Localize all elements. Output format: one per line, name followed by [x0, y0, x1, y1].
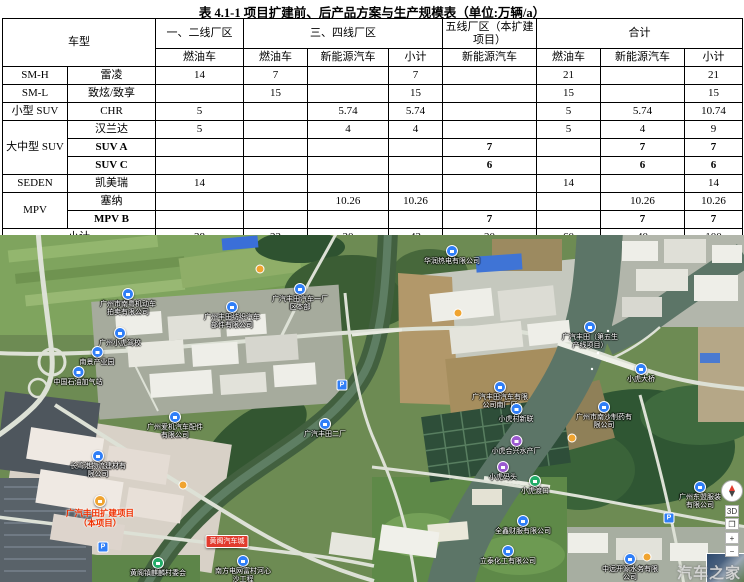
map-pin-icon: [294, 283, 306, 295]
map-label-text: 长湾港物流建材有限公司: [70, 463, 126, 480]
header-group-total: 合计: [537, 19, 743, 49]
value-cell: 7: [601, 211, 685, 229]
map-label-text: 黄阁镇麒麟村委会: [130, 570, 186, 578]
layers-icon[interactable]: ❐: [725, 518, 739, 530]
map-pin-icon: [319, 418, 331, 430]
map-label-text: 广汽丰田汽车一厂区本部: [272, 296, 328, 313]
value-cell: [308, 175, 389, 193]
map-label[interactable]: 南景产业园: [80, 346, 115, 367]
map-pin-icon: [497, 461, 509, 473]
map-label-text: 中国石油加气站: [54, 379, 103, 387]
value-cell: 7: [685, 139, 743, 157]
value-cell: [389, 175, 443, 193]
value-cell: [156, 85, 244, 103]
parking-icon[interactable]: P: [337, 380, 348, 391]
value-cell: 6: [601, 157, 685, 175]
value-cell: [389, 211, 443, 229]
vehicle-category-cell: SEDEN: [3, 175, 68, 193]
value-cell: 6: [685, 157, 743, 175]
poi-icon[interactable]: [454, 309, 463, 318]
map-label-text: 广州爱机汽车配件有限公司: [147, 424, 203, 441]
value-cell: 4: [308, 121, 389, 139]
map-pin-icon: [510, 403, 522, 415]
value-cell: [537, 193, 601, 211]
vehicle-model-cell: 塞纳: [68, 193, 156, 211]
value-cell: 15: [537, 85, 601, 103]
value-cell: 7: [443, 211, 537, 229]
map-label-text: 南方电网富村河心沙工程: [215, 568, 271, 582]
map-label-text: 小虎渡口: [521, 488, 549, 496]
value-cell: [156, 157, 244, 175]
map-label[interactable]: 小虎码头: [489, 461, 517, 482]
header-subtotal-2: 小计: [685, 49, 743, 67]
map-overlay: 广州市南粤机动车拍卖有限公司广州小虎驾校南景产业园中国石油加气站广州丰田纺织汽车…: [0, 235, 744, 582]
map-label-text: 广汽丰田（第五生产线项目）: [562, 334, 618, 351]
map-label[interactable]: 广州丰田纺织汽车部件有限公司: [204, 301, 260, 331]
map-pin-icon: [226, 301, 238, 313]
map-label[interactable]: 小虎合兴水产厂: [492, 435, 541, 456]
header-group-plant5: 五线厂区（本扩建项目）: [443, 19, 537, 49]
value-cell: 7: [685, 211, 743, 229]
map-label[interactable]: 长湾港物流建材有限公司: [70, 450, 126, 480]
value-cell: [601, 175, 685, 193]
value-cell: [443, 121, 537, 139]
map-label-text: 立泰化工有限公司: [480, 558, 536, 566]
value-cell: [244, 157, 308, 175]
map-label[interactable]: 小虎渡口: [521, 475, 549, 496]
map-pin-icon: [122, 288, 134, 300]
vehicle-model-cell: SUV C: [68, 157, 156, 175]
map-pin-icon: [446, 245, 458, 257]
product-scale-table: 车型 一、二线厂区 三、四线厂区 五线厂区（本扩建项目） 合计 燃油车 燃油车 …: [2, 18, 743, 247]
map-label[interactable]: 华润热电有限公司: [424, 245, 480, 266]
value-cell: 9: [685, 121, 743, 139]
value-cell: [389, 157, 443, 175]
value-cell: [244, 139, 308, 157]
value-cell: 5: [156, 103, 244, 121]
map-label-text: 华润热电有限公司: [424, 258, 480, 266]
map-label-text: 广州市南粤机动车拍卖有限公司: [100, 301, 156, 318]
map-label[interactable]: 黄阁镇麒麟村委会: [130, 557, 186, 578]
value-cell: [443, 103, 537, 121]
value-cell: [244, 193, 308, 211]
zoom-out-button[interactable]: −: [725, 545, 739, 557]
vehicle-model-cell: 汉兰达: [68, 121, 156, 139]
map-pin-icon: [169, 411, 181, 423]
map-label[interactable]: 广汽丰田（第五生产线项目）: [562, 321, 618, 351]
map-pin-icon: [152, 557, 164, 569]
map-pin-icon: [624, 553, 636, 565]
map-label[interactable]: 广汽丰田二厂: [304, 418, 346, 439]
map-label-text: 广汽丰田二厂: [304, 431, 346, 439]
map-label[interactable]: 小虎大桥: [627, 363, 655, 384]
map-label[interactable]: 黄阁汽车城: [206, 535, 249, 548]
value-cell: [244, 175, 308, 193]
value-cell: 14: [156, 67, 244, 85]
header-nev-3: 新能源汽车: [601, 49, 685, 67]
map-label-text: 广汽丰田扩建项目（本项目）: [64, 508, 136, 528]
value-cell: [308, 211, 389, 229]
map-label-text: 广州东盟服装有限公司: [678, 494, 722, 511]
map-label[interactable]: 广州市南粤机动车拍卖有限公司: [100, 288, 156, 318]
map-pin-icon: [237, 555, 249, 567]
vehicle-model-cell: SUV A: [68, 139, 156, 157]
value-cell: 14: [685, 175, 743, 193]
vehicle-category-cell: SM-L: [3, 85, 68, 103]
vehicle-category-cell: SM-H: [3, 67, 68, 85]
value-cell: [308, 67, 389, 85]
product-table-body: SM-H雷凌14772121SM-L致炫/致享15151515小型 SUVCHR…: [3, 67, 743, 247]
map-label-text: 小虎大桥: [627, 376, 655, 384]
value-cell: [156, 193, 244, 211]
value-cell: 4: [389, 121, 443, 139]
header-fuel-2: 燃油车: [244, 49, 308, 67]
map-label[interactable]: 广州东盟服装有限公司: [678, 481, 722, 511]
map-label-text: 全鑫财服有限公司: [495, 528, 551, 536]
parking-icon[interactable]: P: [98, 542, 109, 553]
value-cell: 5: [537, 121, 601, 139]
satellite-map[interactable]: 广州市南粤机动车拍卖有限公司广州小虎驾校南景产业园中国石油加气站广州丰田纺织汽车…: [0, 235, 744, 582]
poi-icon[interactable]: [256, 265, 265, 274]
value-cell: [443, 67, 537, 85]
value-cell: [389, 139, 443, 157]
map-pin-icon: [635, 363, 647, 375]
map-label[interactable]: 立泰化工有限公司: [480, 545, 536, 566]
value-cell: [244, 121, 308, 139]
value-cell: 14: [537, 175, 601, 193]
map-pin-icon: [91, 346, 103, 358]
vehicle-model-cell: MPV B: [68, 211, 156, 229]
map-pin-icon: [694, 481, 706, 493]
value-cell: 5.74: [308, 103, 389, 121]
map-label[interactable]: 广汽丰田汽车一厂区本部: [272, 283, 328, 313]
value-cell: [244, 103, 308, 121]
value-cell: 7: [389, 67, 443, 85]
value-cell: 10.26: [601, 193, 685, 211]
header-fuel-1: 燃油车: [156, 49, 244, 67]
value-cell: 5.74: [601, 103, 685, 121]
value-cell: 21: [685, 67, 743, 85]
value-cell: 5.74: [389, 103, 443, 121]
header-nev-2: 新能源汽车: [443, 49, 537, 67]
map-label[interactable]: 中远开源水务有限公司: [602, 553, 658, 582]
parking-icon[interactable]: P: [664, 513, 675, 524]
map-pin-icon: [92, 450, 104, 462]
value-cell: 5: [156, 121, 244, 139]
map-label-text: 小虎码头: [489, 474, 517, 482]
map-label[interactable]: 广州爱机汽车配件有限公司: [147, 411, 203, 441]
map-label-text: 广州丰田纺织汽车部件有限公司: [204, 314, 260, 331]
value-cell: [537, 139, 601, 157]
map-label-text: 中远开源水务有限公司: [602, 566, 658, 582]
value-cell: 10.26: [389, 193, 443, 211]
value-cell: 14: [156, 175, 244, 193]
map-pin-icon: [72, 366, 84, 378]
vehicle-category-cell: 小型 SUV: [3, 103, 68, 121]
map-pin-icon: [114, 327, 126, 339]
value-cell: 7: [244, 67, 308, 85]
compass-icon[interactable]: [721, 480, 743, 502]
map-pin-icon: [529, 475, 541, 487]
header-fuel-3: 燃油车: [537, 49, 601, 67]
value-cell: 10.26: [685, 193, 743, 211]
vehicle-category-cell: 大中型 SUV: [3, 121, 68, 175]
value-cell: [156, 211, 244, 229]
map-pin-icon: [510, 435, 522, 447]
value-cell: 7: [443, 139, 537, 157]
map-label[interactable]: 全鑫财服有限公司: [495, 515, 551, 536]
header-nev-1: 新能源汽车: [308, 49, 389, 67]
value-cell: [443, 85, 537, 103]
poi-icon[interactable]: [179, 481, 188, 490]
value-cell: [308, 85, 389, 103]
map-label[interactable]: 广州市南沙制药有限公司: [576, 401, 632, 431]
zoom-in-button[interactable]: +: [725, 532, 739, 544]
map-pin-icon: [502, 545, 514, 557]
map-label[interactable]: 中国石油加气站: [54, 366, 103, 387]
poi-icon[interactable]: [568, 434, 577, 443]
value-cell: 5: [537, 103, 601, 121]
value-cell: [537, 157, 601, 175]
value-cell: 15: [389, 85, 443, 103]
value-cell: [601, 67, 685, 85]
value-cell: [244, 211, 308, 229]
map-pin-icon: [517, 515, 529, 527]
value-cell: [537, 211, 601, 229]
map-label-text: 小虎合兴水产厂: [492, 448, 541, 456]
map-label-text: 广州市南沙制药有限公司: [576, 414, 632, 431]
map-label-text: 小虎村新联: [499, 416, 534, 424]
map-red-badge[interactable]: 黄阁汽车城: [206, 535, 249, 548]
value-cell: [308, 139, 389, 157]
value-cell: 10.74: [685, 103, 743, 121]
value-cell: 15: [244, 85, 308, 103]
vehicle-model-cell: 雷凌: [68, 67, 156, 85]
value-cell: 4: [601, 121, 685, 139]
watermark: 汽车之家: [677, 562, 741, 582]
header-group-plant34: 三、四线厂区: [244, 19, 443, 49]
vehicle-model-cell: 凯美瑞: [68, 175, 156, 193]
map-label[interactable]: 南方电网富村河心沙工程: [215, 555, 271, 582]
value-cell: [601, 85, 685, 103]
map-pin-icon: [494, 381, 506, 393]
header-vehicle-type: 车型: [3, 19, 156, 67]
value-cell: 10.26: [308, 193, 389, 211]
value-cell: 15: [685, 85, 743, 103]
map-3d-button[interactable]: 3D: [725, 505, 739, 517]
value-cell: [156, 139, 244, 157]
value-cell: [443, 175, 537, 193]
map-pin-icon: [598, 401, 610, 413]
map-pin-icon: [584, 321, 596, 333]
value-cell: 21: [537, 67, 601, 85]
report-page: 表 4.1-1 项目扩建前、后产品方案与生产规模表（单位:万辆/a） 车型 一、…: [0, 0, 744, 582]
vehicle-model-cell: CHR: [68, 103, 156, 121]
value-cell: [308, 157, 389, 175]
map-pin-icon: [94, 495, 106, 507]
map-label[interactable]: 广汽丰田扩建项目（本项目）: [64, 495, 136, 528]
vehicle-category-cell: MPV: [3, 193, 68, 229]
header-group-plant12: 一、二线厂区: [156, 19, 244, 49]
header-subtotal-1: 小计: [389, 49, 443, 67]
map-label[interactable]: 小虎村新联: [499, 403, 534, 424]
value-cell: 6: [443, 157, 537, 175]
value-cell: [443, 193, 537, 211]
vehicle-model-cell: 致炫/致享: [68, 85, 156, 103]
value-cell: 7: [601, 139, 685, 157]
